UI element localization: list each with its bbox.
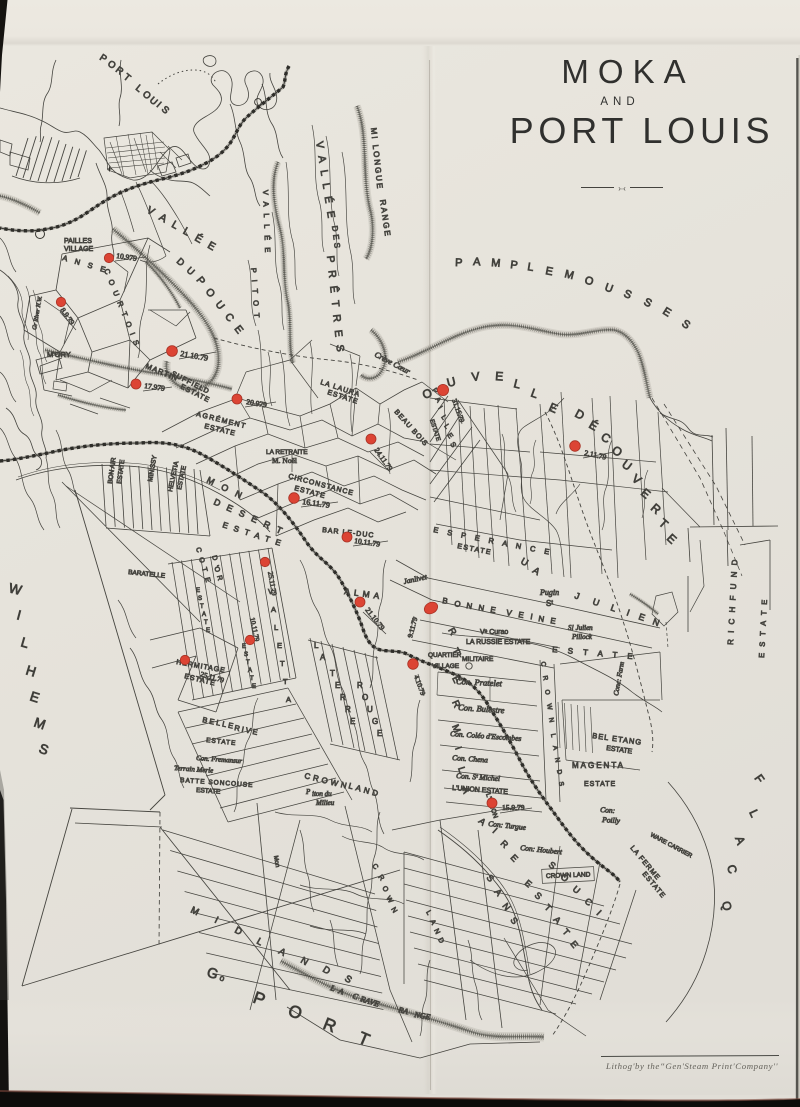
svg-text:L: L bbox=[274, 623, 278, 632]
svg-text:Pugin: Pugin bbox=[539, 588, 559, 597]
svg-text:Poilly: Poilly bbox=[601, 815, 621, 825]
svg-text:V: V bbox=[471, 369, 480, 384]
svg-text:S: S bbox=[198, 596, 202, 602]
svg-text:iton du: iton du bbox=[312, 790, 332, 798]
svg-text:E: E bbox=[277, 641, 282, 650]
svg-text:U: U bbox=[367, 705, 373, 714]
svg-text:E: E bbox=[495, 369, 504, 384]
svg-text:MAGENTA: MAGENTA bbox=[572, 761, 625, 770]
svg-text:Con:: Con: bbox=[600, 805, 616, 815]
svg-text:T: T bbox=[250, 676, 254, 682]
svg-text:O: O bbox=[362, 693, 368, 702]
svg-text:E: E bbox=[252, 684, 256, 690]
svg-text:T: T bbox=[280, 659, 285, 668]
svg-text:S: S bbox=[244, 652, 248, 658]
svg-text:T: T bbox=[200, 604, 204, 610]
svg-text:A: A bbox=[202, 612, 206, 618]
svg-text:LA RETRAITE: LA RETRAITE bbox=[266, 449, 308, 456]
svg-text:Lithogʹby the‟GenʹSteam Print′: Lithogʹby the‟GenʹSteam Print′Companyʹʹ bbox=[605, 1061, 778, 1071]
svg-text:ESTATE: ESTATE bbox=[584, 781, 616, 788]
svg-text:VILLAGE: VILLAGE bbox=[64, 246, 94, 253]
svg-text:V: V bbox=[268, 587, 273, 596]
svg-text:E: E bbox=[196, 588, 200, 594]
svg-text:A: A bbox=[248, 668, 252, 674]
svg-text:A: A bbox=[286, 695, 291, 704]
svg-text:G: G bbox=[372, 717, 378, 726]
svg-text:AND: AND bbox=[600, 96, 639, 108]
svg-text:PAILLES: PAILLES bbox=[64, 238, 92, 245]
svg-text:PORT LOUIS: PORT LOUIS bbox=[510, 110, 775, 151]
svg-text:T: T bbox=[204, 620, 208, 626]
svg-text:P: P bbox=[455, 257, 463, 269]
svg-text:P: P bbox=[305, 788, 311, 796]
svg-text:P: P bbox=[510, 259, 519, 272]
svg-text:A: A bbox=[271, 605, 276, 614]
svg-text:E: E bbox=[242, 644, 246, 650]
svg-text:MILITAIRE: MILITAIRE bbox=[462, 656, 494, 663]
svg-text:M. Noël: M. Noël bbox=[272, 456, 297, 465]
svg-text:T: T bbox=[330, 669, 335, 678]
svg-text:MOKA: MOKA bbox=[561, 53, 694, 90]
svg-text:T: T bbox=[246, 660, 250, 666]
svg-text:A: A bbox=[473, 256, 482, 268]
svg-text:Milieu: Milieu bbox=[315, 799, 335, 807]
svg-text:›∙‹: ›∙‹ bbox=[618, 184, 626, 193]
svg-text:M: M bbox=[491, 257, 501, 270]
svg-text:T: T bbox=[283, 677, 288, 686]
svg-text:VILLAGE: VILLAGE bbox=[432, 663, 460, 670]
